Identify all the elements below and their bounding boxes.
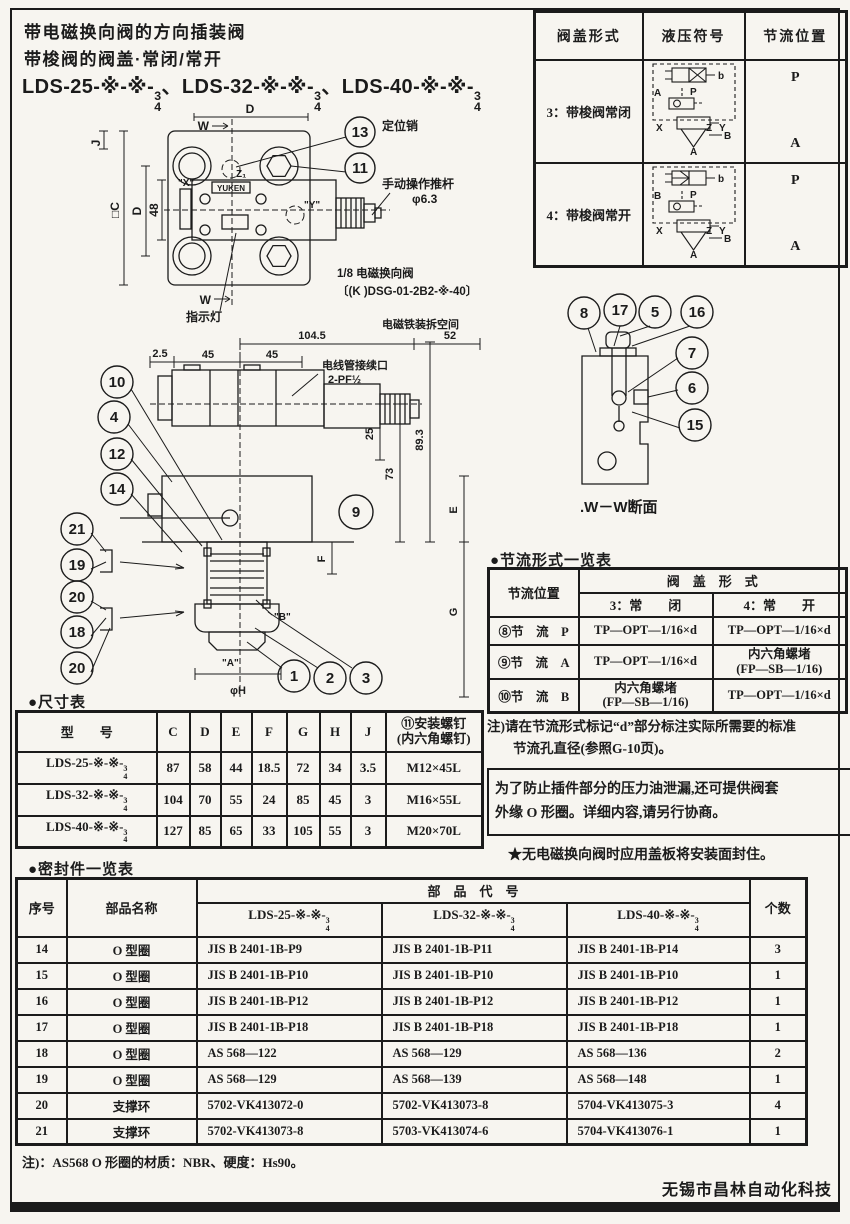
dim-25: 25 [364, 428, 376, 440]
symbol-port-a: A [690, 147, 697, 157]
throttle-sub-open: 4：常 开 [713, 593, 847, 617]
svg-text:13: 13 [352, 124, 369, 141]
solenoid-valve-model: 〔(K )DSG-01-2B2-※-40〕 [337, 284, 477, 298]
symbol-port-left: A [654, 88, 661, 99]
table-row: ⑨节 流 A TP—OPT—1/16×d 内六角螺堵(FP—SB—1/16) [489, 645, 847, 679]
svg-text:6: 6 [688, 380, 696, 397]
cover-type-4-label: 4：带梭阀常开 [535, 163, 643, 267]
svg-text:7: 7 [688, 345, 696, 362]
svg-text:4: 4 [110, 409, 119, 426]
svg-text:21: 21 [69, 521, 86, 538]
svg-text:5: 5 [651, 304, 659, 321]
table-row: 15 O 型圈 JIS B 2401-1B-P10 JIS B 2401-1B-… [17, 963, 807, 989]
symbol-port-bb: B [724, 234, 731, 245]
throttle-table: 节流位置 阀 盖 形 式 3：常 闭 4：常 开 ⑧节 流 P TP—OPT—1… [487, 567, 848, 714]
seal-model-25: LDS-25-※-※-34 [197, 903, 382, 937]
model-cell: LDS-25-※-※-34 [17, 752, 157, 784]
model-1: LDS-25-※-※- [22, 76, 154, 98]
dim-D: D [246, 103, 255, 116]
dim-phiH: φH [230, 685, 246, 697]
dim-89-3: 89.3 [414, 429, 426, 450]
symbol-port-b-sol: b [718, 71, 724, 82]
symbol-port-b-sol: b [718, 174, 724, 185]
dim-col-screw: ⑪安装螺钉(内六角螺钉) [386, 712, 483, 752]
hydraulic-symbol-closed: A P b X Z Y B A [643, 60, 745, 163]
seal-model-40: LDS-40-※-※-34 [567, 903, 750, 937]
plan-outline [168, 131, 381, 285]
table-row: ⑧节 流 P TP—OPT—1/16×d TP—OPT—1/16×d [489, 617, 847, 645]
seal-col-no: 序号 [17, 879, 67, 937]
dim-48: 48 [147, 203, 161, 217]
symbol-port-left: B [654, 191, 661, 202]
dim-52: 52 [444, 330, 456, 342]
cover-header-type: 阀盖形式 [535, 12, 643, 60]
svg-text:20: 20 [69, 660, 86, 677]
symbol-port-p: P [690, 87, 697, 98]
conduit-size: 2-PF½ [328, 374, 361, 386]
model-2: 、LDS-32-※-※- [161, 76, 314, 98]
seal-span-header: 部 品 代 号 [197, 879, 750, 903]
svg-text:14: 14 [109, 481, 126, 498]
company-name: 无锡市昌林自动化科技 [560, 1176, 832, 1200]
dim-F: F [316, 555, 328, 562]
svg-text:9: 9 [352, 504, 360, 521]
seal-footnote: 注)：AS568 O 形圈的材质：NBR、硬度：Hs90。 [22, 1152, 304, 1171]
ww-leader-lines [588, 326, 690, 428]
seal-table: 序号 部品名称 部 品 代 号 个数 LDS-25-※-※-34 LDS-32-… [15, 877, 808, 1146]
pushrod-label: 手动操作推杆 [382, 176, 454, 191]
dim-45b: 45 [266, 349, 278, 361]
dimension-table: 型 号 C D E F G H J ⑪安装螺钉(内六角螺钉) LDS-25-※-… [15, 710, 484, 849]
table-row: 21 支撑环 5702-VK413073-8 5703-VK413074-6 5… [17, 1119, 807, 1145]
svg-text:16: 16 [689, 304, 706, 321]
throttle-span-header: 阀 盖 形 式 [579, 569, 847, 593]
page-title-line2: 带梭阀的阀盖·常闭/常开 [24, 45, 222, 70]
svg-text:8: 8 [580, 305, 588, 322]
svg-text:20: 20 [69, 589, 86, 606]
ww-section-drawing: 8 17 5 16 7 6 15 .W－W断面 [552, 276, 850, 531]
symbol-port-z: Z [706, 123, 712, 134]
cover-plate-note: ★无电磁换向阀时应用盖板将安装面封住。 [508, 844, 774, 864]
ww-outline [582, 332, 648, 484]
plan-callout-numbers: 13 11 [352, 124, 369, 177]
svg-text:10: 10 [109, 374, 126, 391]
svg-text:11: 11 [352, 160, 368, 177]
front-outline [100, 365, 419, 650]
front-section-drawing: 10 4 12 14 21 19 20 18 20 9 1 2 3 电磁铁装拆空… [22, 312, 537, 720]
brand-label: YUKEN [217, 184, 245, 193]
pushrod-dia: φ6.3 [412, 192, 438, 206]
hydraulic-symbol-open: B P b X Z Y B A [643, 163, 745, 267]
svg-text:15: 15 [687, 417, 704, 434]
dim-73: 73 [384, 468, 396, 480]
dim-C: □C [108, 202, 122, 218]
table-row: ⑩节 流 B 内六角螺堵(FP—SB—1/16) TP—OPT—1/16×d [489, 679, 847, 713]
cover-positions-3: P A [745, 60, 847, 163]
svg-text:2: 2 [326, 670, 334, 687]
dim-45a: 45 [202, 349, 214, 361]
plan-view-drawing: 13 11 D W J □C D 48 W 指示灯 定位销 手动操作推杆 φ6.… [90, 103, 535, 333]
page-bottom-bar [10, 1202, 840, 1212]
dimension-table-heading: ●尺寸表 [28, 691, 86, 712]
space-label: 电磁铁装拆空间 [382, 317, 459, 331]
ww-caption: .W－W断面 [580, 498, 657, 516]
dim-D-left: D [130, 206, 144, 215]
table-row: 20 支撑环 5702-VK413072-0 5702-VK413073-8 5… [17, 1093, 807, 1119]
table-row: LDS-40-※-※-34 127 85 65 33 105 55 3 M20×… [17, 816, 483, 848]
pos-p: P [791, 173, 800, 189]
conduit-label: 电线管接续口 [322, 358, 388, 372]
cover-header-throttle: 节流位置 [745, 12, 847, 60]
hydraulic-symbol-drawing: A P b X Z Y B A [646, 61, 742, 157]
table-row: 17 O 型圈 JIS B 2401-1B-P18 JIS B 2401-1B-… [17, 1015, 807, 1041]
front-dim-labels: 电磁铁装拆空间 104.5 52 2.5 45 45 电线管接续口 2-PF½ … [152, 317, 460, 697]
svg-text:19: 19 [69, 557, 86, 574]
w-bottom: W [200, 293, 212, 307]
port-a: "A" [222, 658, 239, 669]
pin-label: 定位销 [382, 118, 418, 133]
symbol-port-bb: B [724, 131, 731, 142]
symbol-port-x: X [656, 123, 663, 134]
dim-col-model: 型 号 [17, 712, 157, 752]
oring-offer-note: 为了防止插件部分的压力油泄漏,还可提供阀套 外缘 O 形圈。详细内容,请另行协商… [487, 768, 850, 836]
w-top: W [198, 119, 210, 133]
svg-text:18: 18 [69, 624, 86, 641]
table-row: 14 O 型圈 JIS B 2401-1B-P9 JIS B 2401-1B-P… [17, 937, 807, 963]
table-row: 18 O 型圈 AS 568—122 AS 568—129 AS 568—136… [17, 1041, 807, 1067]
cover-type-3-label: 3：带梭阀常闭 [535, 60, 643, 163]
table-row: LDS-25-※-※-34 87 58 44 18.5 72 34 3.5 M1… [17, 752, 483, 784]
cover-header-symbol: 液压符号 [643, 12, 745, 60]
symbol-port-a: A [690, 250, 697, 260]
table-row: 16 O 型圈 JIS B 2401-1B-P12 JIS B 2401-1B-… [17, 989, 807, 1015]
throttle-pos-header: 节流位置 [489, 569, 579, 617]
throttle-sub-closed: 3：常 闭 [579, 593, 713, 617]
seal-col-name: 部品名称 [67, 879, 197, 937]
svg-text:17: 17 [612, 302, 629, 319]
port-b: "B" [274, 612, 291, 623]
hydraulic-symbol-drawing: B P b X Z Y B A [646, 164, 742, 260]
model-3: 、LDS-40-※-※- [321, 76, 474, 98]
symbol-port-z: Z [706, 226, 712, 237]
symbol-port-x: X [656, 226, 663, 237]
valve-cover-table: 阀盖形式 液压符号 节流位置 3：带梭阀常闭 A P [533, 10, 848, 268]
page-title-line1: 带电磁换向阀的方向插装阀 [24, 18, 246, 43]
front-leader-lines [91, 389, 352, 672]
model-cell: LDS-40-※-※-34 [17, 816, 157, 848]
dim-2-5: 2.5 [152, 348, 167, 360]
plan-ports: "X" "Y" Z₁ YUKEN [178, 169, 320, 211]
port-z1: Z₁ [236, 169, 246, 180]
svg-text:3: 3 [362, 670, 370, 687]
dim-104: 104.5 [298, 330, 326, 342]
model-cell: LDS-32-※-※-34 [17, 784, 157, 816]
cover-positions-4: P A [745, 163, 847, 267]
dim-E: E [448, 506, 460, 513]
plan-solenoid-note: 1/8 电磁换向阀 〔(K )DSG-01-2B2-※-40〕 [337, 266, 477, 298]
throttle-note: 注)请在节流形式标记“d”部分标注实际所需要的标准 节流孔直径(参照G-10页)… [487, 716, 843, 759]
dim-J: J [90, 140, 103, 147]
symbol-port-p: P [690, 190, 697, 201]
front-port-labels: "B" "A" [222, 612, 291, 669]
port-x: "X" [178, 178, 194, 189]
svg-text:1: 1 [290, 668, 298, 685]
seal-table-heading: ●密封件一览表 [28, 858, 134, 879]
dim-G: G [448, 608, 460, 617]
pos-a: A [790, 136, 800, 152]
svg-text:12: 12 [109, 446, 126, 463]
solenoid-valve-label: 1/8 电磁换向阀 [337, 266, 414, 280]
front-callout-numbers: 10 4 12 14 21 19 20 18 20 9 1 2 3 [69, 374, 371, 687]
pos-a: A [790, 239, 800, 255]
pos-p: P [791, 70, 800, 86]
port-y: "Y" [304, 200, 320, 211]
seal-col-qty: 个数 [750, 879, 807, 937]
table-row: LDS-32-※-※-34 104 70 55 24 85 45 3 M16×5… [17, 784, 483, 816]
table-row: 19 O 型圈 AS 568—129 AS 568—139 AS 568—148… [17, 1067, 807, 1093]
seal-model-32: LDS-32-※-※-34 [382, 903, 567, 937]
